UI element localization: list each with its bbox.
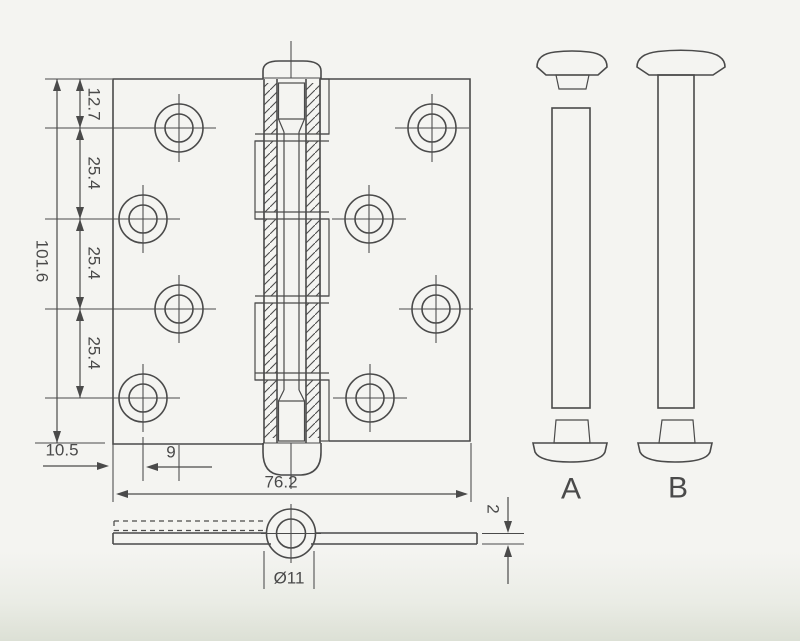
dim-hole-pitch-3: 25.4 [85,336,104,369]
knuckle-barrel [255,41,329,489]
scanned-drawing-page: 101.6 12.7 25.4 25.4 25.4 10.5 9 [0,0,800,641]
knuckle-circle [261,504,321,563]
screw-hole [399,275,473,343]
pin-a-shaft [552,108,590,408]
screw-hole [395,94,469,162]
side-view: Ø11 2 [113,497,524,589]
dim-top-offset: 12.7 [85,87,104,120]
dim-hole-stagger: 9 [166,443,175,462]
side-view-dimensions: Ø11 2 [264,497,524,589]
pin-b-shaft [658,75,694,408]
hinge-technical-drawing: 101.6 12.7 25.4 25.4 25.4 10.5 9 [0,0,800,641]
pin-top-cap [263,61,321,79]
pin-a-bottom-cap [533,443,607,462]
barrel-hatching [265,83,320,438]
front-view: 101.6 12.7 25.4 25.4 25.4 10.5 9 [33,41,474,502]
pin-b-bottom-cap [638,443,712,462]
screw-hole [332,185,406,253]
pin-a: A [533,51,607,506]
dim-hole-pitch-1: 25.4 [85,156,104,189]
pin-b-bottom-stub [659,420,695,443]
dim-leaf-thickness: 2 [484,504,503,513]
pin-a-top-head [537,51,607,75]
front-view-dimensions: 101.6 12.7 25.4 25.4 25.4 10.5 9 [33,79,472,502]
hinge-pin-section [279,83,305,441]
screw-hole [333,364,407,432]
right-leaf-outline [321,79,470,441]
pin-b-label: B [668,472,688,505]
pin-a-label: A [561,473,581,506]
screw-holes [106,94,473,432]
pin-b: B [637,50,725,504]
dim-edge-offset: 10.5 [45,441,78,460]
pin-a-top-head-stub [556,75,589,89]
left-leaf-outline [113,79,264,444]
pin-b-top-head [637,50,725,75]
pin-bottom-cap [263,443,321,475]
leaf-edge-profile [113,533,477,544]
dim-hole-pitch-2: 25.4 [85,246,104,279]
dim-total-height: 101.6 [33,240,52,283]
pin-a-bottom-stub [554,420,590,443]
dim-total-width: 76.2 [264,473,297,492]
dim-knuckle-diameter: Ø11 [274,569,305,588]
folded-leaf-hidden-outline [114,521,267,531]
